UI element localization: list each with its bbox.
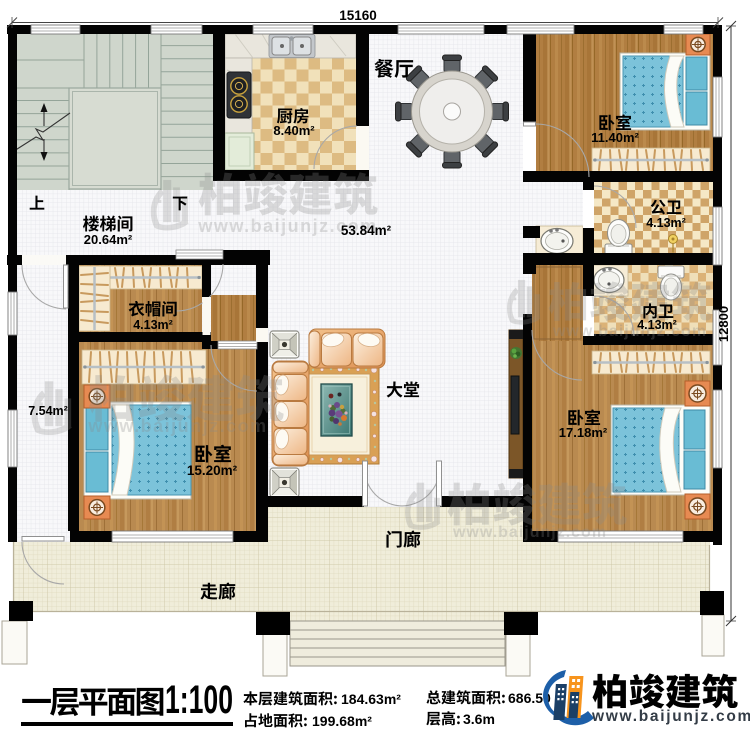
svg-text:4.13m²: 4.13m²	[646, 216, 686, 230]
svg-text:184.63m²: 184.63m²	[341, 691, 401, 707]
svg-text:17.18m²: 17.18m²	[559, 425, 608, 440]
svg-text:3.6m: 3.6m	[463, 711, 495, 727]
svg-text:8.40m²: 8.40m²	[273, 123, 315, 138]
svg-text:12800: 12800	[716, 306, 731, 342]
svg-text:www.baijunjz.com: www.baijunjz.com	[591, 708, 750, 725]
svg-text:4.13m²: 4.13m²	[133, 318, 173, 332]
svg-text:199.68m²: 199.68m²	[312, 713, 372, 729]
svg-text:20.64m²: 20.64m²	[84, 232, 133, 247]
svg-text:1:100: 1:100	[165, 678, 233, 722]
svg-text:11.40m²: 11.40m²	[591, 130, 639, 145]
svg-text:www.baijunjz.com: www.baijunjz.com	[552, 323, 707, 340]
svg-text:15.20m²: 15.20m²	[187, 463, 238, 478]
svg-text:www.baijunjz.com: www.baijunjz.com	[452, 524, 607, 541]
svg-text:4.13m²: 4.13m²	[637, 318, 677, 332]
svg-text:7.54m²: 7.54m²	[28, 404, 68, 418]
svg-text:www.baijunjz.com: www.baijunjz.com	[87, 416, 267, 436]
svg-text:53.84m²: 53.84m²	[341, 223, 392, 238]
svg-text:15160: 15160	[339, 8, 377, 23]
